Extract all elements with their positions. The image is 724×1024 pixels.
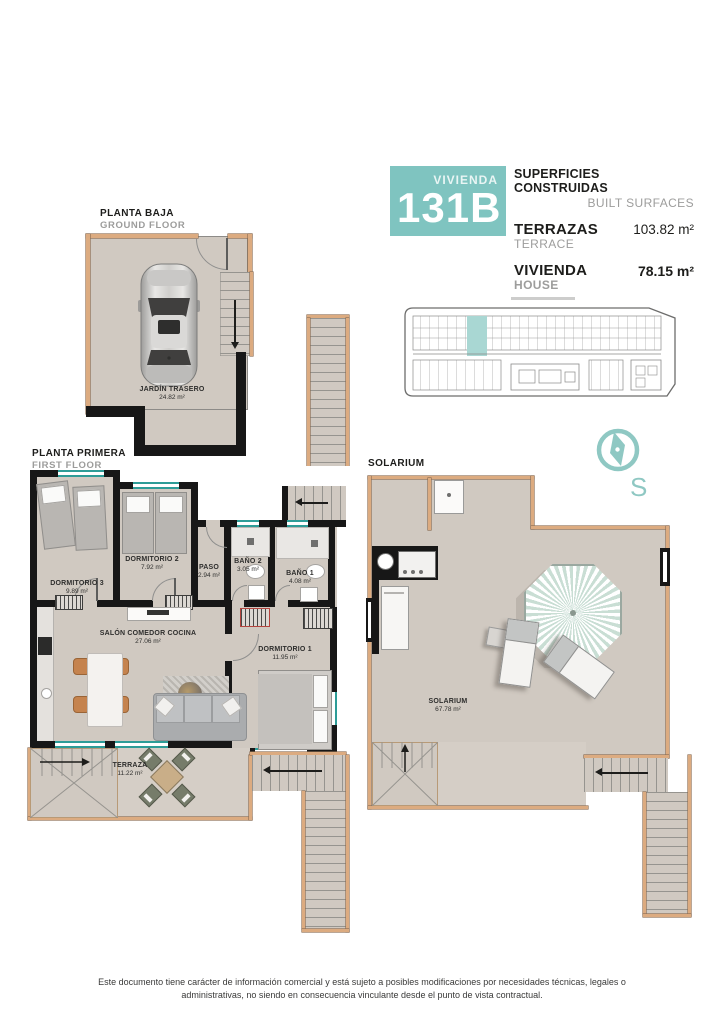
- tv: [147, 610, 169, 615]
- site-plan-highlighted-unit: [467, 316, 487, 356]
- ground-floor-title-es: PLANTA BAJA: [100, 208, 185, 219]
- legal-disclaimer: Este documento tiene carácter de informa…: [92, 976, 632, 1001]
- site-plan-block-right1: [589, 360, 623, 390]
- wall-segment: [225, 607, 232, 634]
- exterior-gap: [120, 466, 198, 482]
- single-bed: [122, 492, 154, 554]
- stair-arrow-left: [591, 768, 602, 776]
- radiator: [55, 595, 83, 610]
- wall-segment: [643, 914, 691, 917]
- pergola-pole: [570, 610, 576, 616]
- room-label-dormitorio-1: DORMITORIO 111.95 m²: [245, 646, 325, 661]
- wall-segment: [198, 520, 206, 527]
- house-label-en: HOUSE: [514, 278, 587, 292]
- ground-floor-title: PLANTA BAJA GROUND FLOOR: [100, 208, 185, 231]
- solarium-stairs: [372, 742, 438, 806]
- stair-direction-line: [234, 300, 236, 342]
- room-label-solarium: SOLARIUM67.78 m²: [408, 698, 488, 713]
- cooktop-knob: [419, 570, 423, 574]
- wall-segment: [97, 600, 153, 607]
- stair-arrow-left: [291, 498, 302, 506]
- room-label-dormitorio-3: DORMITORIO 39.89 m²: [37, 580, 117, 595]
- wall-segment: [346, 318, 349, 490]
- cooktop-knob: [411, 570, 415, 574]
- wall-segment: [531, 526, 669, 529]
- cabinet-handle: [384, 592, 404, 594]
- unit-badge: VIVIENDA 131B: [390, 166, 506, 236]
- wall-segment: [372, 580, 379, 654]
- stair-direction-line: [266, 770, 322, 772]
- site-plan-caption-line: [511, 297, 575, 300]
- site-plan-row-bottom-left: [413, 360, 501, 390]
- wall-segment: [307, 318, 310, 486]
- sink: [248, 585, 265, 600]
- surface-row-house: VIVIENDA HOUSE 78.15 m²: [514, 262, 694, 292]
- wall-segment: [105, 741, 115, 748]
- sofa-cushion: [184, 695, 212, 723]
- shower-tray: [276, 527, 329, 559]
- wall-segment: [688, 755, 691, 916]
- wall-segment: [531, 476, 534, 529]
- kitchen-counter: [37, 607, 54, 741]
- window: [115, 741, 168, 748]
- window: [368, 602, 371, 638]
- shower-drain: [447, 493, 451, 497]
- shower-head-icon: [247, 538, 254, 545]
- outdoor-sink: [377, 553, 394, 570]
- stairs-flight-down: [646, 792, 688, 914]
- car-top-view: [138, 262, 200, 388]
- shower-head-icon: [311, 540, 318, 547]
- surfaces-title-es: SUPERFICIES CONSTRUIDAS: [514, 167, 694, 195]
- stair-direction-line: [298, 502, 328, 504]
- wall-segment: [30, 470, 37, 748]
- room-label-salon: SALÓN COMEDOR COCINA27.06 m²: [88, 630, 208, 645]
- room-label-bano-2: BAÑO 23.05 m²: [226, 558, 270, 573]
- window: [55, 741, 105, 748]
- wall-segment: [248, 234, 252, 276]
- ground-floor-title-en: GROUND FLOOR: [100, 220, 185, 231]
- dining-table: [87, 653, 123, 727]
- wall-segment: [368, 476, 371, 809]
- room-label-terraza: TERRAZA11.22 m²: [90, 762, 170, 777]
- room-label-jardin-trasero: JARDÍN TRASERO 24.82 m²: [120, 386, 224, 401]
- wall-segment: [86, 234, 198, 238]
- wall-segment: [368, 476, 534, 479]
- wall-segment: [134, 445, 246, 456]
- first-floor-title-es: PLANTA PRIMERA: [32, 448, 126, 459]
- unit-badge-number: 131B: [397, 184, 501, 232]
- pillow: [313, 710, 328, 743]
- garden-extension-floor: [145, 410, 236, 446]
- house-label-es: VIVIENDA: [514, 262, 587, 279]
- wall-segment: [236, 352, 246, 456]
- floorplan-page: VIVIENDA 131B SUPERFICIES CONSTRUIDAS BU…: [0, 0, 724, 1024]
- sink: [300, 587, 318, 602]
- surfaces-title-en: BUILT SURFACES: [514, 196, 694, 210]
- window: [663, 552, 667, 582]
- stair-direction-line: [598, 772, 648, 774]
- surface-row-terrace: TERRAZAS TERRACE 103.82 m²: [514, 221, 694, 251]
- stairs-flight-down: [305, 791, 346, 929]
- door-leaf: [226, 238, 228, 270]
- wall-segment: [328, 520, 335, 607]
- compass-south-label: S: [630, 472, 647, 502]
- kitchen-hob: [38, 637, 52, 655]
- site-plan: [393, 294, 689, 412]
- wall-segment: [346, 755, 349, 932]
- wall-segment: [86, 406, 140, 417]
- terrace-label-en: TERRACE: [514, 237, 598, 251]
- first-floor-title: PLANTA PRIMERA FIRST FLOOR: [32, 448, 126, 471]
- room-label-paso: PASO2.94 m²: [189, 564, 229, 579]
- house-area-value: 78.15 m²: [638, 262, 694, 292]
- cooktop-knob: [403, 570, 407, 574]
- wall-segment: [368, 806, 588, 809]
- wall-segment: [244, 600, 274, 607]
- bed-blanket: [258, 674, 312, 744]
- wall-segment: [428, 478, 431, 530]
- wall-segment: [86, 234, 90, 414]
- wall-segment: [250, 272, 253, 356]
- surfaces-panel: SUPERFICIES CONSTRUIDAS BUILT SURFACES T…: [514, 167, 694, 292]
- compass: S: [592, 424, 662, 504]
- pillow: [313, 675, 328, 708]
- window: [58, 470, 104, 477]
- wall-segment: [168, 741, 230, 748]
- wall-segment: [191, 489, 198, 607]
- site-plan-row-top: [413, 316, 661, 350]
- wall-segment: [302, 929, 349, 932]
- room-label-dormitorio-2: DORMITORIO 27.92 m²: [112, 556, 192, 571]
- terrace-label-es: TERRAZAS: [514, 221, 598, 238]
- room-label-bano-1: BAÑO 14.08 m²: [278, 570, 322, 585]
- wall-segment: [302, 791, 305, 929]
- terrace-stairs: [30, 748, 118, 818]
- window: [237, 520, 259, 527]
- kitchen-sink: [41, 688, 52, 699]
- wall-segment: [643, 792, 646, 914]
- wall-segment: [30, 741, 55, 748]
- stair-arrow-left: [259, 766, 270, 774]
- single-bed: [72, 485, 107, 551]
- window: [287, 520, 308, 527]
- outdoor-shower-tray: [434, 480, 464, 514]
- window: [133, 482, 179, 489]
- solarium-title: SOLARIUM: [368, 458, 425, 469]
- exterior-stairs-flight: [310, 318, 346, 486]
- wardrobe: [303, 608, 333, 629]
- single-bed: [155, 492, 187, 554]
- wardrobe: [240, 608, 270, 627]
- outdoor-cabinet: [381, 586, 409, 650]
- terrace-area-value: 103.82 m²: [633, 221, 694, 251]
